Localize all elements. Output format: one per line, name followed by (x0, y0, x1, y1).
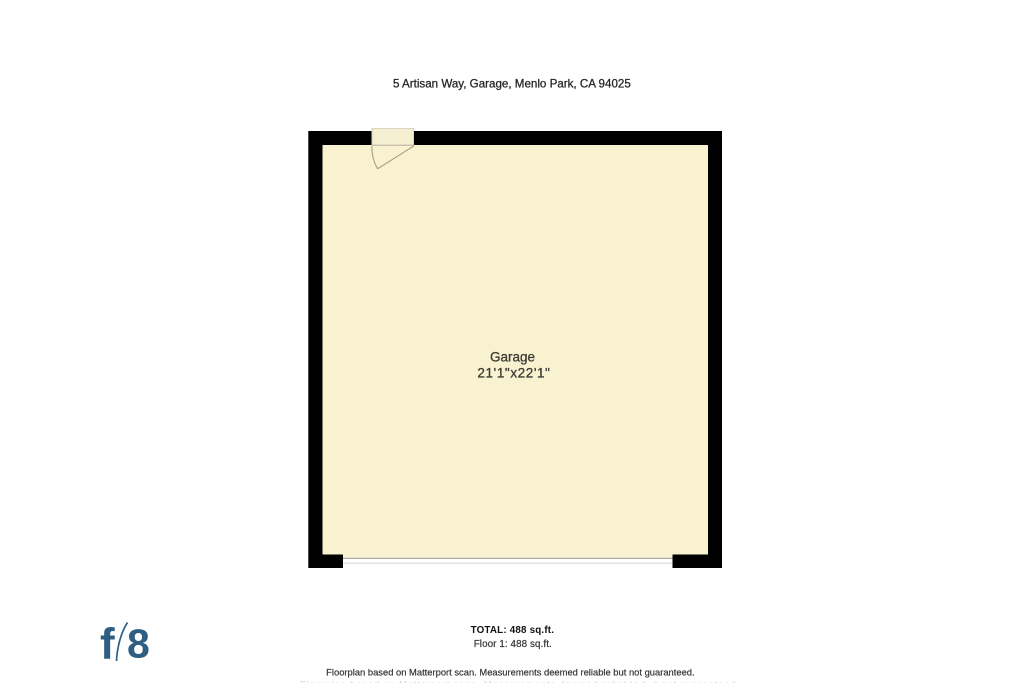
svg-text:f: f (100, 620, 115, 669)
svg-text:21'1"x22'1": 21'1"x22'1" (477, 365, 550, 380)
svg-text:Floorplan based on Matterport: Floorplan based on Matterport scan. Meas… (300, 679, 740, 683)
svg-text:Garage: Garage (490, 350, 535, 365)
svg-text:TOTAL: 488 sq.ft.: TOTAL: 488 sq.ft. (471, 625, 555, 636)
svg-text:Floorplan based on Matterport: Floorplan based on Matterport scan. Meas… (326, 667, 694, 678)
svg-text:Floor 1: 488 sq.ft.: Floor 1: 488 sq.ft. (474, 639, 552, 650)
svg-text:5 Artisan Way, Garage, Menlo P: 5 Artisan Way, Garage, Menlo Park, CA 94… (393, 77, 631, 90)
svg-text:8: 8 (127, 621, 150, 667)
